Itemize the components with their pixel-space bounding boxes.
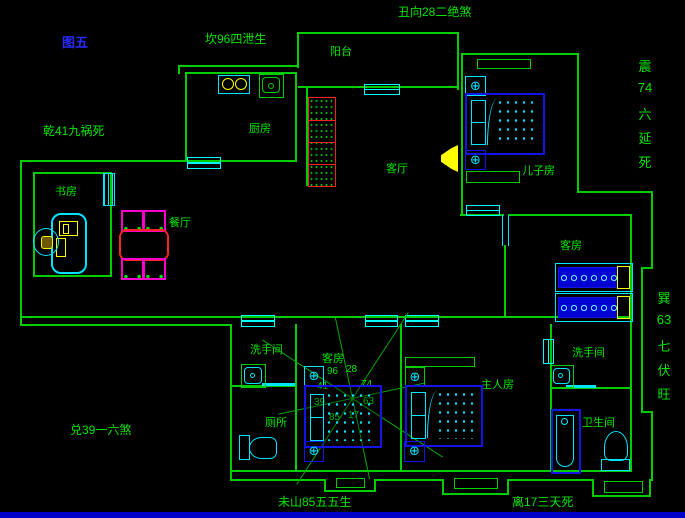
wall — [185, 72, 187, 162]
plant-divider — [309, 120, 335, 121]
compass-target-icon: ⊕ — [410, 371, 421, 384]
door — [502, 215, 509, 246]
compass-target-icon: ⊕ — [309, 370, 320, 383]
door — [103, 173, 115, 206]
wall — [230, 479, 326, 481]
pillow — [617, 296, 630, 319]
wall — [577, 53, 579, 193]
compass-target-icon: ⊕ — [309, 445, 320, 458]
plant-divider — [309, 164, 335, 165]
nightstand: ⊕ — [405, 367, 425, 387]
room-label-kitchen: 厨房 — [249, 123, 271, 135]
window — [405, 315, 439, 327]
label-zhen-char: 延 — [634, 128, 656, 152]
pillow — [310, 394, 324, 418]
entrance-step — [604, 481, 643, 493]
wall — [33, 172, 35, 277]
bathtub — [551, 409, 581, 474]
wall — [508, 214, 632, 216]
stove — [218, 75, 250, 94]
window — [364, 84, 400, 95]
bathroom-sink — [241, 364, 266, 388]
nightstand: ⊕ — [465, 150, 486, 170]
window — [466, 205, 500, 216]
compass-number: 96 — [327, 366, 338, 377]
bathtub-drain-icon — [561, 418, 568, 425]
wall — [20, 160, 22, 326]
shelf — [477, 59, 531, 69]
wall — [295, 72, 297, 162]
wall — [20, 316, 632, 318]
wall — [376, 479, 444, 481]
label-xun-char: 63 — [653, 312, 675, 336]
room-label-master: 主人房 — [481, 379, 514, 391]
pillow — [471, 122, 486, 145]
label-dui: 兑39一六煞 — [70, 424, 131, 437]
wall — [230, 324, 232, 472]
bed — [405, 385, 483, 447]
label-zhen-char: 74 — [634, 80, 656, 104]
bathroom-sink — [550, 365, 574, 388]
wall — [461, 53, 463, 216]
nightstand: ⊕ — [304, 366, 324, 386]
label-xun-char: 伏 — [653, 360, 675, 384]
compass-target-icon: ⊕ — [409, 445, 420, 458]
label-zhen-char: 六 — [634, 104, 656, 128]
mattress — [325, 391, 376, 441]
room-label-son: 儿子房 — [522, 165, 555, 177]
room-label-guest-right: 客房 — [560, 240, 582, 252]
dining-chair — [121, 258, 144, 280]
wall — [20, 160, 187, 162]
sink-drain-icon — [558, 373, 563, 378]
room-label-balcony: 阳台 — [330, 46, 352, 58]
wall — [630, 216, 632, 472]
wall — [442, 493, 509, 495]
shelf — [466, 171, 520, 183]
wall — [20, 324, 232, 326]
computer-monitor-icon — [59, 221, 78, 236]
desk-chair — [33, 228, 59, 256]
label-wei: 未山85五五生 — [278, 496, 351, 509]
room-label-bath: 卫生间 — [582, 417, 615, 429]
wall — [33, 172, 112, 174]
room-label-toilet: 厕所 — [265, 417, 287, 429]
label-qian: 乾41九祸死 — [43, 125, 104, 138]
mattress — [496, 98, 539, 146]
label-xun-char: 旺 — [653, 384, 675, 408]
pillow — [411, 415, 426, 439]
floor-plan-canvas: 图五 丑向28二绝煞 坎96四泄生 乾41九祸死 兑39一六煞 未山85五五生 … — [0, 0, 685, 518]
label-xun-column: 巽 63 七 伏 旺 — [653, 288, 675, 408]
wall — [297, 32, 299, 68]
room-label-wash-right: 洗手间 — [572, 347, 605, 359]
wall — [178, 65, 298, 67]
compass-target-icon: ⊕ — [470, 154, 481, 167]
pillow — [411, 392, 426, 416]
label-li: 离17三天死 — [512, 496, 573, 509]
sink-drain-icon — [250, 373, 255, 378]
entrance-step — [454, 478, 498, 489]
dining-chair — [143, 258, 166, 280]
wall — [457, 32, 459, 90]
bottom-border-line — [0, 512, 685, 518]
wall — [651, 191, 653, 269]
mattress — [558, 267, 618, 288]
kitchen-sink — [259, 74, 284, 98]
plant-box — [308, 97, 336, 187]
label-zhen-char: 震 — [634, 56, 656, 80]
entrance-step — [336, 478, 365, 488]
wall — [651, 411, 653, 481]
stove-burner-icon — [235, 78, 247, 90]
room-label-study: 书房 — [55, 186, 77, 198]
compass-number: 28 — [346, 364, 357, 375]
label-zhen-char: 死 — [634, 152, 656, 176]
window — [187, 157, 221, 169]
wall — [579, 191, 653, 193]
nightstand: ⊕ — [304, 441, 324, 462]
wall — [592, 495, 651, 497]
monitor-screen — [63, 224, 69, 234]
nightstand: ⊕ — [404, 441, 425, 462]
room-label-guest-bottom: 客房 — [322, 353, 344, 365]
bed — [304, 385, 382, 448]
toilet-base — [601, 459, 630, 471]
mattress — [558, 297, 618, 318]
wall — [504, 245, 506, 318]
room-label-living: 客厅 — [386, 163, 408, 175]
wall — [178, 65, 180, 74]
compass-target-icon: ⊕ — [470, 80, 481, 93]
label-chou-xiang: 丑向28二绝煞 — [398, 6, 471, 19]
pillow — [310, 417, 324, 441]
sink-drain-icon — [268, 83, 274, 89]
chair-seat — [41, 236, 53, 249]
dining-table — [119, 229, 169, 261]
wall — [324, 490, 376, 492]
label-kan: 坎96四泄生 — [205, 33, 266, 46]
bed — [555, 263, 633, 292]
label-zhen-column: 震 74 六 延 死 — [634, 56, 656, 176]
window — [543, 339, 554, 364]
window — [241, 315, 275, 327]
wall — [33, 275, 112, 277]
figure-label: 图五 — [62, 36, 88, 50]
wall — [641, 267, 643, 413]
shelf — [405, 357, 475, 367]
label-xun-char: 巽 — [653, 288, 675, 312]
pillow — [471, 100, 486, 123]
wall — [509, 479, 594, 481]
room-label-dining: 餐厅 — [169, 217, 191, 229]
toilet-bowl — [604, 431, 628, 461]
plant-divider — [309, 142, 335, 143]
mattress — [436, 390, 477, 439]
bed — [465, 93, 545, 155]
bed — [555, 293, 633, 322]
toilet-bowl — [249, 437, 277, 459]
wall — [400, 324, 402, 472]
door — [262, 383, 295, 386]
wall — [297, 32, 459, 34]
tv-speaker-icon — [441, 145, 458, 172]
window — [365, 315, 398, 327]
pillow — [617, 266, 630, 289]
label-xun-char: 七 — [653, 336, 675, 360]
wall — [461, 53, 579, 55]
stove-burner-icon — [222, 78, 234, 90]
wall — [295, 324, 297, 472]
